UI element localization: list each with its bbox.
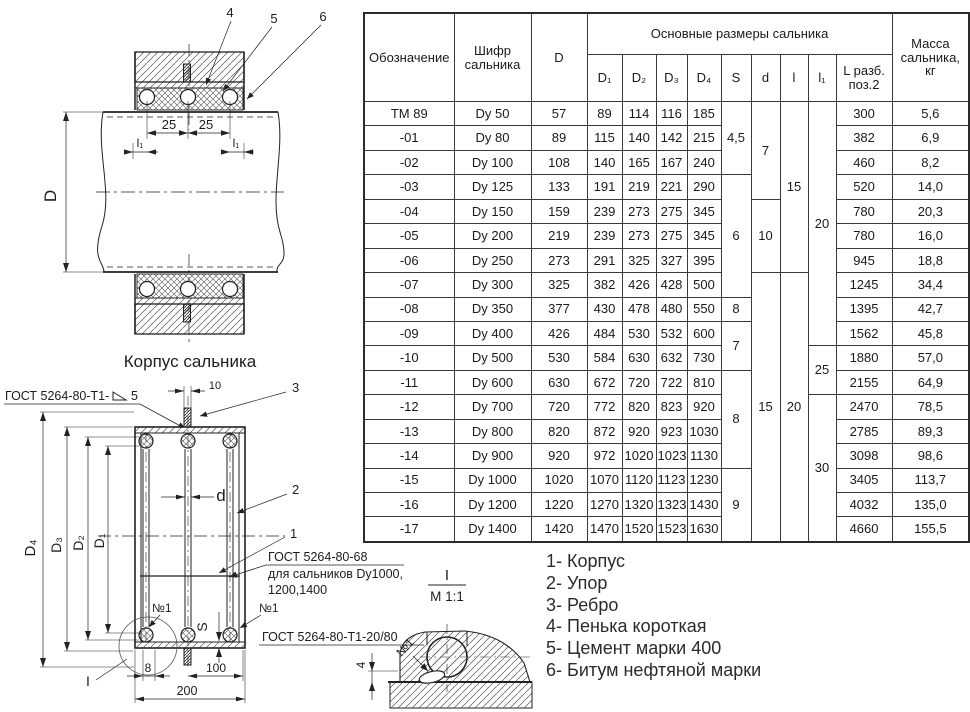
dim-8-label: 8 bbox=[145, 661, 152, 675]
dim-10-label: 10 bbox=[209, 380, 221, 392]
table-cell: Dy 125 bbox=[454, 175, 531, 199]
table-cell: 2470 bbox=[836, 395, 892, 419]
legend-item: 3- Ребро bbox=[546, 595, 761, 617]
table-cell: -16 bbox=[364, 493, 454, 517]
table-cell: 275 bbox=[656, 224, 687, 248]
table-cell: 6,9 bbox=[892, 126, 969, 150]
table-cell: 426 bbox=[622, 273, 656, 297]
col-header-l: l bbox=[780, 55, 808, 102]
table-cell: 291 bbox=[587, 248, 622, 272]
table-cell: 672 bbox=[587, 370, 622, 394]
table-cell: 810 bbox=[687, 370, 721, 394]
table-cell: 20 bbox=[808, 102, 836, 346]
table-cell: 532 bbox=[656, 321, 687, 345]
table-cell: -04 bbox=[364, 199, 454, 223]
num1-right: №1 bbox=[259, 601, 279, 615]
table-cell: -15 bbox=[364, 468, 454, 492]
table-row: -02Dy 1001081401651672404608,2 bbox=[364, 150, 969, 174]
table-row: -13Dy 8008208729209231030278589,3 bbox=[364, 419, 969, 443]
table-cell: 550 bbox=[687, 297, 721, 321]
table-cell: 142 bbox=[656, 126, 687, 150]
table-cell: 1070 bbox=[587, 468, 622, 492]
table-row: -04Dy 1501592392732753451078020,3 bbox=[364, 199, 969, 223]
table-cell: 221 bbox=[656, 175, 687, 199]
table-cell: 1020 bbox=[531, 468, 587, 492]
table-cell: Dy 1400 bbox=[454, 517, 531, 542]
gost-68-line3: 1200,1400 bbox=[268, 583, 327, 597]
table-cell: Dy 350 bbox=[454, 297, 531, 321]
table-cell: 8,2 bbox=[892, 150, 969, 174]
table-cell: 8 bbox=[721, 297, 751, 321]
dim-chain-left: D₄ D₃ D₂ D₁ bbox=[22, 412, 140, 667]
table-row: -17Dy 1400142014701520152316304660155,5 bbox=[364, 517, 969, 542]
table-cell: 8 bbox=[721, 370, 751, 468]
table-cell: 377 bbox=[531, 297, 587, 321]
col-header-D: D bbox=[531, 13, 587, 102]
dim-D1-label: D₁ bbox=[91, 533, 107, 548]
table-cell: 5,6 bbox=[892, 102, 969, 126]
table-cell: 14,0 bbox=[892, 175, 969, 199]
table-cell: 2785 bbox=[836, 419, 892, 443]
table-cell: 191 bbox=[587, 175, 622, 199]
table-cell: 20 bbox=[780, 273, 808, 542]
table-cell: 275 bbox=[656, 199, 687, 223]
table-cell: 327 bbox=[656, 248, 687, 272]
table-cell: 15 bbox=[780, 102, 808, 273]
table-cell: 772 bbox=[587, 395, 622, 419]
table-cell: -08 bbox=[364, 297, 454, 321]
table-cell: 4660 bbox=[836, 517, 892, 542]
table-cell: 18,8 bbox=[892, 248, 969, 272]
top-drawing-caption: Корпус сальника bbox=[124, 352, 257, 371]
table-cell: 1323 bbox=[656, 493, 687, 517]
table-cell: 630 bbox=[531, 370, 587, 394]
table-cell: 78,5 bbox=[892, 395, 969, 419]
dim-l1: l₁ l₁ bbox=[124, 136, 254, 159]
col-group-main-dims: Основные размеры сальника bbox=[587, 13, 892, 55]
callout-5: 5 bbox=[270, 11, 277, 26]
weld-note-t1-5: ГОСТ 5264-80-Т1- 5 bbox=[4, 389, 186, 429]
table-cell: -06 bbox=[364, 248, 454, 272]
detail-scale: М 1:1 bbox=[430, 589, 464, 604]
col-header-L-razb: L разб. поз.2 bbox=[836, 55, 892, 102]
table-cell: 239 bbox=[587, 199, 622, 223]
table-cell: 520 bbox=[836, 175, 892, 199]
dim-l1-left: l₁ bbox=[137, 136, 144, 150]
table-cell: 1023 bbox=[656, 444, 687, 468]
table-row: -08Dy 3503774304784805508139542,7 bbox=[364, 297, 969, 321]
gost-t1-5-text: ГОСТ 5264-80-Т1- bbox=[5, 389, 109, 403]
table-cell: 1470 bbox=[587, 517, 622, 542]
gland-bottom bbox=[135, 274, 244, 334]
top-section-drawing: D 25 25 l₁ l₁ 4 bbox=[0, 0, 360, 372]
table-cell: 215 bbox=[687, 126, 721, 150]
table-cell: Dy 900 bbox=[454, 444, 531, 468]
table-cell: 920 bbox=[687, 395, 721, 419]
dim-100-label: 100 bbox=[206, 661, 226, 675]
table-cell: Dy 80 bbox=[454, 126, 531, 150]
table-cell: 30 bbox=[808, 395, 836, 542]
table-cell: 20,3 bbox=[892, 199, 969, 223]
dim-10: 10 bbox=[168, 380, 221, 410]
table-row: -03Dy 125133191219221290652014,0 bbox=[364, 175, 969, 199]
dim-S-label: S bbox=[194, 622, 210, 631]
table-cell: 4,5 bbox=[721, 102, 751, 175]
legend-item: 5- Цемент марки 400 bbox=[546, 638, 761, 660]
table-cell: Dy 300 bbox=[454, 273, 531, 297]
table-cell: 219 bbox=[531, 224, 587, 248]
table-cell: Dy 50 bbox=[454, 102, 531, 126]
weld-note-68: ГОСТ 5264-80-68 для сальников Dy1000, 12… bbox=[229, 550, 404, 597]
table-cell: 730 bbox=[687, 346, 721, 370]
callout-3: 3 bbox=[292, 380, 299, 395]
table-cell: ТМ 89 bbox=[364, 102, 454, 126]
table-row: -14Dy 900920972102010231130309898,6 bbox=[364, 444, 969, 468]
dim-D2-label: D₂ bbox=[70, 535, 86, 551]
table-cell: 113,7 bbox=[892, 468, 969, 492]
table-cell: 57,0 bbox=[892, 346, 969, 370]
table-cell: 89,3 bbox=[892, 419, 969, 443]
table-cell: 4032 bbox=[836, 493, 892, 517]
table-row: -05Dy 20021923927327534578016,0 bbox=[364, 224, 969, 248]
legend-item: 6- Битум нефтяной марки bbox=[546, 660, 761, 682]
col-header-D2: D₂ bbox=[622, 55, 656, 102]
table-cell: Dy 400 bbox=[454, 321, 531, 345]
table-cell: 1120 bbox=[622, 468, 656, 492]
col-header-mass: Масса сальника, кг bbox=[892, 13, 969, 102]
table-cell: 382 bbox=[836, 126, 892, 150]
table-cell: 484 bbox=[587, 321, 622, 345]
table-cell: 1630 bbox=[687, 517, 721, 542]
table-row: -10Dy 50053058463063273025188057,0 bbox=[364, 346, 969, 370]
detail-title: I bbox=[445, 567, 449, 584]
parts-legend: 1- Корпус 2- Упор 3- Ребро 4- Пенька кор… bbox=[546, 551, 761, 682]
table-cell: -11 bbox=[364, 370, 454, 394]
table-cell: 16,0 bbox=[892, 224, 969, 248]
table-cell: 1220 bbox=[531, 493, 587, 517]
table-cell: 430 bbox=[587, 297, 622, 321]
table-cell: 1562 bbox=[836, 321, 892, 345]
table-cell: 972 bbox=[587, 444, 622, 468]
table-cell: -05 bbox=[364, 224, 454, 248]
legend-item: 4- Пенька короткая bbox=[546, 616, 761, 638]
table-cell: 382 bbox=[587, 273, 622, 297]
dimensions-table-wrap: Обозначение Шифр сальника D Основные раз… bbox=[363, 12, 970, 543]
col-header-designation: Обозначение bbox=[364, 13, 454, 102]
table-cell: 140 bbox=[587, 150, 622, 174]
table-cell: 426 bbox=[531, 321, 587, 345]
table-cell: 155,5 bbox=[892, 517, 969, 542]
table-cell: 7 bbox=[751, 102, 780, 200]
dim-l1-right: l₁ bbox=[233, 136, 240, 150]
table-cell: 1420 bbox=[531, 517, 587, 542]
table-cell: 1123 bbox=[656, 468, 687, 492]
table-cell: Dy 800 bbox=[454, 419, 531, 443]
table-cell: 3405 bbox=[836, 468, 892, 492]
gost-68-line1: ГОСТ 5264-80-68 bbox=[268, 550, 367, 564]
table-cell: 780 bbox=[836, 224, 892, 248]
table-cell: 1880 bbox=[836, 346, 892, 370]
table-cell: 34,4 bbox=[892, 273, 969, 297]
table-row: -11Dy 6006306727207228108215564,9 bbox=[364, 370, 969, 394]
table-cell: -09 bbox=[364, 321, 454, 345]
table-cell: 1270 bbox=[587, 493, 622, 517]
table-cell: 460 bbox=[836, 150, 892, 174]
table-row: -06Dy 25027329132532739594518,8 bbox=[364, 248, 969, 272]
table-cell: 632 bbox=[656, 346, 687, 370]
dim-D4-label: D₄ bbox=[22, 540, 39, 557]
table-cell: 219 bbox=[622, 175, 656, 199]
table-cell: 89 bbox=[587, 102, 622, 126]
table-cell: Dy 150 bbox=[454, 199, 531, 223]
table-cell: 159 bbox=[531, 199, 587, 223]
callout-4: 4 bbox=[226, 5, 233, 20]
table-cell: 140 bbox=[622, 126, 656, 150]
table-cell: 240 bbox=[687, 150, 721, 174]
table-cell: 10 bbox=[751, 199, 780, 272]
table-cell: 530 bbox=[622, 321, 656, 345]
table-row: -07Dy 3003253824264285001520124534,4 bbox=[364, 273, 969, 297]
table-cell: 273 bbox=[622, 224, 656, 248]
table-cell: 820 bbox=[531, 419, 587, 443]
table-cell: 89 bbox=[531, 126, 587, 150]
table-cell: Dy 100 bbox=[454, 150, 531, 174]
table-cell: -01 bbox=[364, 126, 454, 150]
table-cell: 945 bbox=[836, 248, 892, 272]
table-row: -01Dy 80891151401422153826,9 bbox=[364, 126, 969, 150]
table-cell: 820 bbox=[622, 395, 656, 419]
table-cell: 720 bbox=[531, 395, 587, 419]
col-header-l1: l₁ bbox=[808, 55, 836, 102]
dim-25-left: 25 bbox=[162, 117, 176, 132]
table-cell: Dy 600 bbox=[454, 370, 531, 394]
dimensions-table: Обозначение Шифр сальника D Основные раз… bbox=[363, 12, 970, 543]
gost-t1-5-num: 5 bbox=[131, 389, 138, 403]
table-cell: 1130 bbox=[687, 444, 721, 468]
table-cell: 7 bbox=[721, 321, 751, 370]
table-cell: 428 bbox=[656, 273, 687, 297]
table-cell: 1030 bbox=[687, 419, 721, 443]
gost-t1-2080-text: ГОСТ 5264-80-Т1-20/80 bbox=[262, 630, 398, 644]
table-cell: 1245 bbox=[836, 273, 892, 297]
table-cell: 114 bbox=[622, 102, 656, 126]
table-cell: 600 bbox=[687, 321, 721, 345]
table-cell: 325 bbox=[531, 273, 587, 297]
table-cell: 108 bbox=[531, 150, 587, 174]
table-cell: -14 bbox=[364, 444, 454, 468]
dim-D-label: D bbox=[41, 190, 60, 202]
col-header-d: d bbox=[751, 55, 780, 102]
table-cell: 920 bbox=[531, 444, 587, 468]
callout-2: 2 bbox=[292, 482, 299, 497]
table-cell: 57 bbox=[531, 102, 587, 126]
table-cell: 1230 bbox=[687, 468, 721, 492]
callout-6: 6 bbox=[319, 9, 326, 24]
table-row: ТМ 89Dy 5057891141161854,5715203005,6 bbox=[364, 102, 969, 126]
table-cell: 9 bbox=[721, 468, 751, 542]
table-cell: 167 bbox=[656, 150, 687, 174]
table-cell: Dy 250 bbox=[454, 248, 531, 272]
table-cell: 185 bbox=[687, 102, 721, 126]
detail-dim-4: 4 bbox=[354, 661, 368, 668]
num1-left: №1 bbox=[152, 601, 172, 615]
table-cell: Dy 200 bbox=[454, 224, 531, 248]
col-header-D4: D₄ bbox=[687, 55, 721, 102]
table-cell: 872 bbox=[587, 419, 622, 443]
legend-item: 1- Корпус bbox=[546, 551, 761, 573]
dim-25-right: 25 bbox=[199, 117, 213, 132]
table-cell: 25 bbox=[808, 346, 836, 395]
table-cell: 530 bbox=[531, 346, 587, 370]
table-cell: 325 bbox=[622, 248, 656, 272]
table-cell: 273 bbox=[531, 248, 587, 272]
table-cell: 345 bbox=[687, 199, 721, 223]
table-cell: 720 bbox=[622, 370, 656, 394]
table-cell: 630 bbox=[622, 346, 656, 370]
dim-d-label: d bbox=[216, 486, 225, 505]
drawing-sheet: D 25 25 l₁ l₁ 4 bbox=[0, 0, 970, 712]
callout-1: 1 bbox=[290, 526, 297, 541]
table-cell: 1320 bbox=[622, 493, 656, 517]
table-cell: 98,6 bbox=[892, 444, 969, 468]
table-cell: -03 bbox=[364, 175, 454, 199]
col-header-D3: D₃ bbox=[656, 55, 687, 102]
table-cell: 133 bbox=[531, 175, 587, 199]
table-cell: 480 bbox=[656, 297, 687, 321]
table-cell: 6 bbox=[721, 175, 751, 297]
table-cell: 42,7 bbox=[892, 297, 969, 321]
table-cell: 920 bbox=[622, 419, 656, 443]
table-cell: 1520 bbox=[622, 517, 656, 542]
table-cell: 116 bbox=[656, 102, 687, 126]
table-cell: Dy 1000 bbox=[454, 468, 531, 492]
table-row: -15Dy 10001020107011201123123093405113,7 bbox=[364, 468, 969, 492]
table-cell: 15 bbox=[751, 273, 780, 542]
table-cell: Dy 500 bbox=[454, 346, 531, 370]
dim-200-label: 200 bbox=[177, 684, 198, 698]
dim-D3-label: D₃ bbox=[48, 537, 64, 553]
table-cell: 345 bbox=[687, 224, 721, 248]
table-cell: -02 bbox=[364, 150, 454, 174]
table-row: -09Dy 4004264845305326007156245,8 bbox=[364, 321, 969, 345]
table-cell: 500 bbox=[687, 273, 721, 297]
table-cell: 300 bbox=[836, 102, 892, 126]
table-cell: 1395 bbox=[836, 297, 892, 321]
table-cell: 115 bbox=[587, 126, 622, 150]
col-header-D1: D₁ bbox=[587, 55, 622, 102]
col-header-S: S bbox=[721, 55, 751, 102]
table-cell: 3098 bbox=[836, 444, 892, 468]
table-cell: 165 bbox=[622, 150, 656, 174]
table-cell: -10 bbox=[364, 346, 454, 370]
table-cell: 2155 bbox=[836, 370, 892, 394]
table-cell: 1430 bbox=[687, 493, 721, 517]
table-cell: 478 bbox=[622, 297, 656, 321]
gland-top bbox=[135, 52, 244, 110]
table-cell: 1523 bbox=[656, 517, 687, 542]
table-cell: -12 bbox=[364, 395, 454, 419]
table-cell: 273 bbox=[622, 199, 656, 223]
table-cell: -17 bbox=[364, 517, 454, 542]
table-cell: 722 bbox=[656, 370, 687, 394]
table-row: -12Dy 70072077282082392030247078,5 bbox=[364, 395, 969, 419]
table-cell: -13 bbox=[364, 419, 454, 443]
table-cell: 45,8 bbox=[892, 321, 969, 345]
table-cell: 780 bbox=[836, 199, 892, 223]
table-cell: 395 bbox=[687, 248, 721, 272]
table-cell: 823 bbox=[656, 395, 687, 419]
table-cell: 290 bbox=[687, 175, 721, 199]
table-cell: 239 bbox=[587, 224, 622, 248]
table-cell: 584 bbox=[587, 346, 622, 370]
table-cell: 135,0 bbox=[892, 493, 969, 517]
view-ref-label: I bbox=[86, 673, 90, 689]
col-header-code: Шифр сальника bbox=[454, 13, 531, 102]
legend-item: 2- Упор bbox=[546, 573, 761, 595]
table-cell: 1020 bbox=[622, 444, 656, 468]
gost-68-line2: для сальников Dy1000, bbox=[268, 567, 403, 581]
table-body: ТМ 89Dy 5057891141161854,5715203005,6-01… bbox=[364, 102, 969, 542]
table-cell: Dy 1200 bbox=[454, 493, 531, 517]
table-cell: 64,9 bbox=[892, 370, 969, 394]
pipe bbox=[96, 112, 284, 272]
table-cell: -07 bbox=[364, 273, 454, 297]
table-cell: 923 bbox=[656, 419, 687, 443]
table-cell: Dy 700 bbox=[454, 395, 531, 419]
table-row: -16Dy 1200122012701320132314304032135,0 bbox=[364, 493, 969, 517]
